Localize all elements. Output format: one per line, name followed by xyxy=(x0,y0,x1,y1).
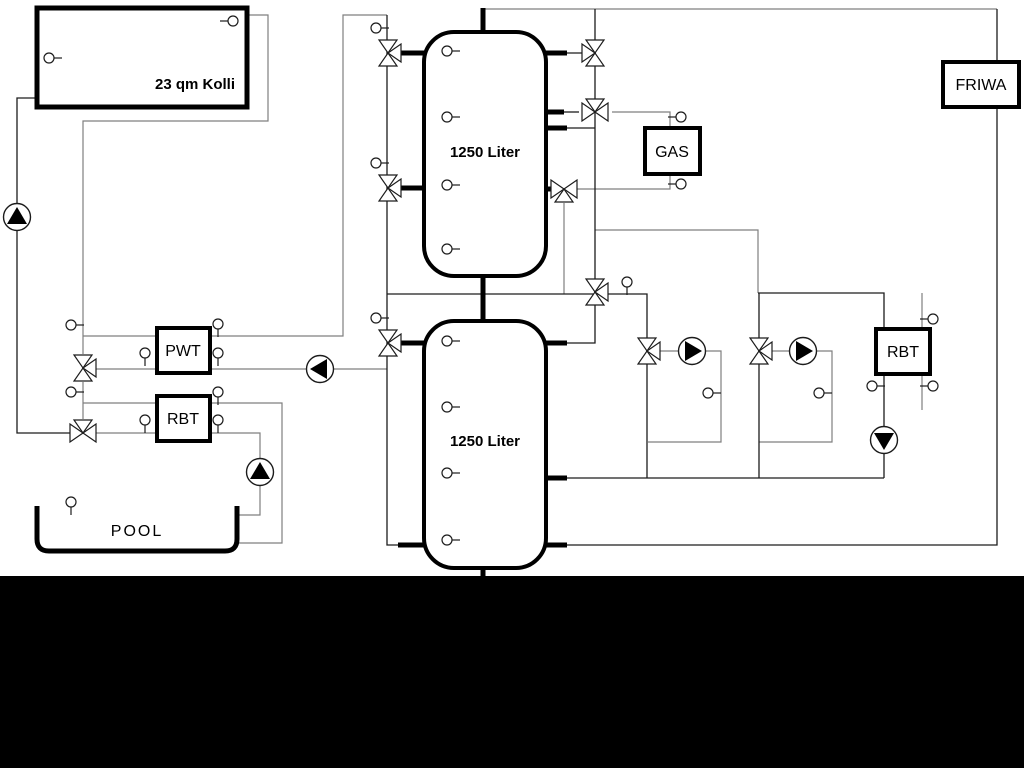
rbt-heat-exchanger-right-label: RBT xyxy=(887,344,919,361)
temp-sensor-icon xyxy=(213,319,223,337)
temp-sensor-icon xyxy=(703,388,721,398)
temp-sensor-icon xyxy=(66,387,84,397)
temp-sensor-icon xyxy=(668,179,686,189)
temp-sensor-icon xyxy=(66,320,84,330)
temp-sensor-icon xyxy=(140,415,150,433)
temp-sensor-icon xyxy=(371,23,389,33)
temp-sensor-icon xyxy=(213,415,223,433)
pool-label: POOL xyxy=(111,523,163,540)
temp-sensor-icon xyxy=(371,158,389,168)
three-way-valve-icon xyxy=(70,420,96,442)
pump-left-icon xyxy=(307,356,334,383)
buffer-tank-lower-label: 1250 Liter xyxy=(450,433,520,450)
schematic-canvas: 23 qm Kolli 1250 Liter 1250 Liter GAS FR… xyxy=(0,0,1024,576)
pump-right-icon xyxy=(790,338,817,365)
gas-boiler-label: GAS xyxy=(655,144,689,161)
three-way-valve-icon xyxy=(379,330,401,356)
three-way-valve-icon xyxy=(750,338,772,364)
temp-sensor-icon xyxy=(814,388,832,398)
three-way-valve-icon xyxy=(74,355,96,381)
temp-sensor-icon xyxy=(371,313,389,323)
temp-sensor-icon xyxy=(668,112,686,122)
temp-sensor-icon xyxy=(920,314,938,324)
temp-sensor-icon xyxy=(920,381,938,391)
schematic-screen: 23 qm Kolli 1250 Liter 1250 Liter GAS FR… xyxy=(0,0,1024,768)
three-way-valve-icon xyxy=(379,175,401,201)
friwa-station-label: FRIWA xyxy=(956,77,1007,94)
rbt-heat-exchanger-left-label: RBT xyxy=(167,411,199,428)
temp-sensor-icon xyxy=(867,381,885,391)
three-way-valve-icon xyxy=(582,40,604,66)
three-way-valve-icon xyxy=(379,40,401,66)
buffer-tank-upper-label: 1250 Liter xyxy=(450,144,520,161)
three-way-valve-icon xyxy=(586,279,608,305)
equipment: 23 qm Kolli 1250 Liter 1250 Liter GAS FR… xyxy=(37,8,1019,568)
temp-sensor-icon xyxy=(66,497,76,515)
temp-sensor-icon xyxy=(213,387,223,405)
pwt-heat-exchanger-label: PWT xyxy=(165,343,201,360)
temp-sensor-icon xyxy=(140,348,150,366)
pump-up-icon xyxy=(4,204,31,231)
bottom-black-band xyxy=(0,576,1024,768)
three-way-valve-icon xyxy=(638,338,660,364)
solar-collector-label: 23 qm Kolli xyxy=(155,76,235,93)
temp-sensor-icon xyxy=(213,348,223,366)
temp-sensor-icon xyxy=(622,277,632,295)
three-way-valve-icon xyxy=(551,180,577,202)
pump-down-icon xyxy=(871,427,898,454)
pump-up-icon xyxy=(247,459,274,486)
pump-right-icon xyxy=(679,338,706,365)
